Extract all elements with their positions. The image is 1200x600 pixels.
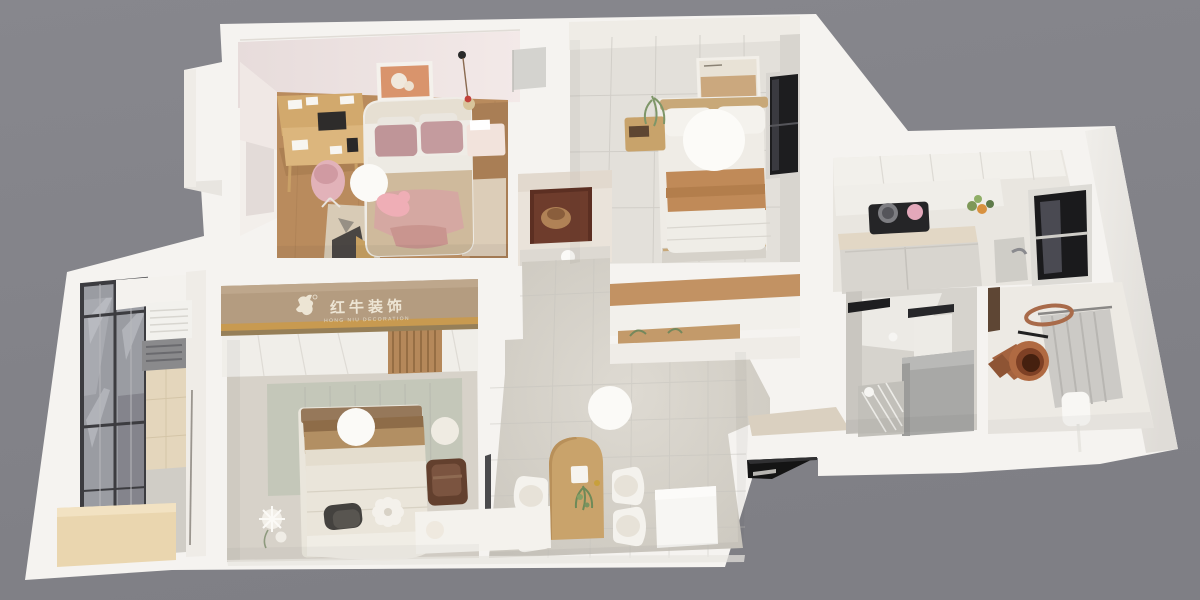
svg-text:红牛装饰: 红牛装饰 (330, 297, 406, 317)
